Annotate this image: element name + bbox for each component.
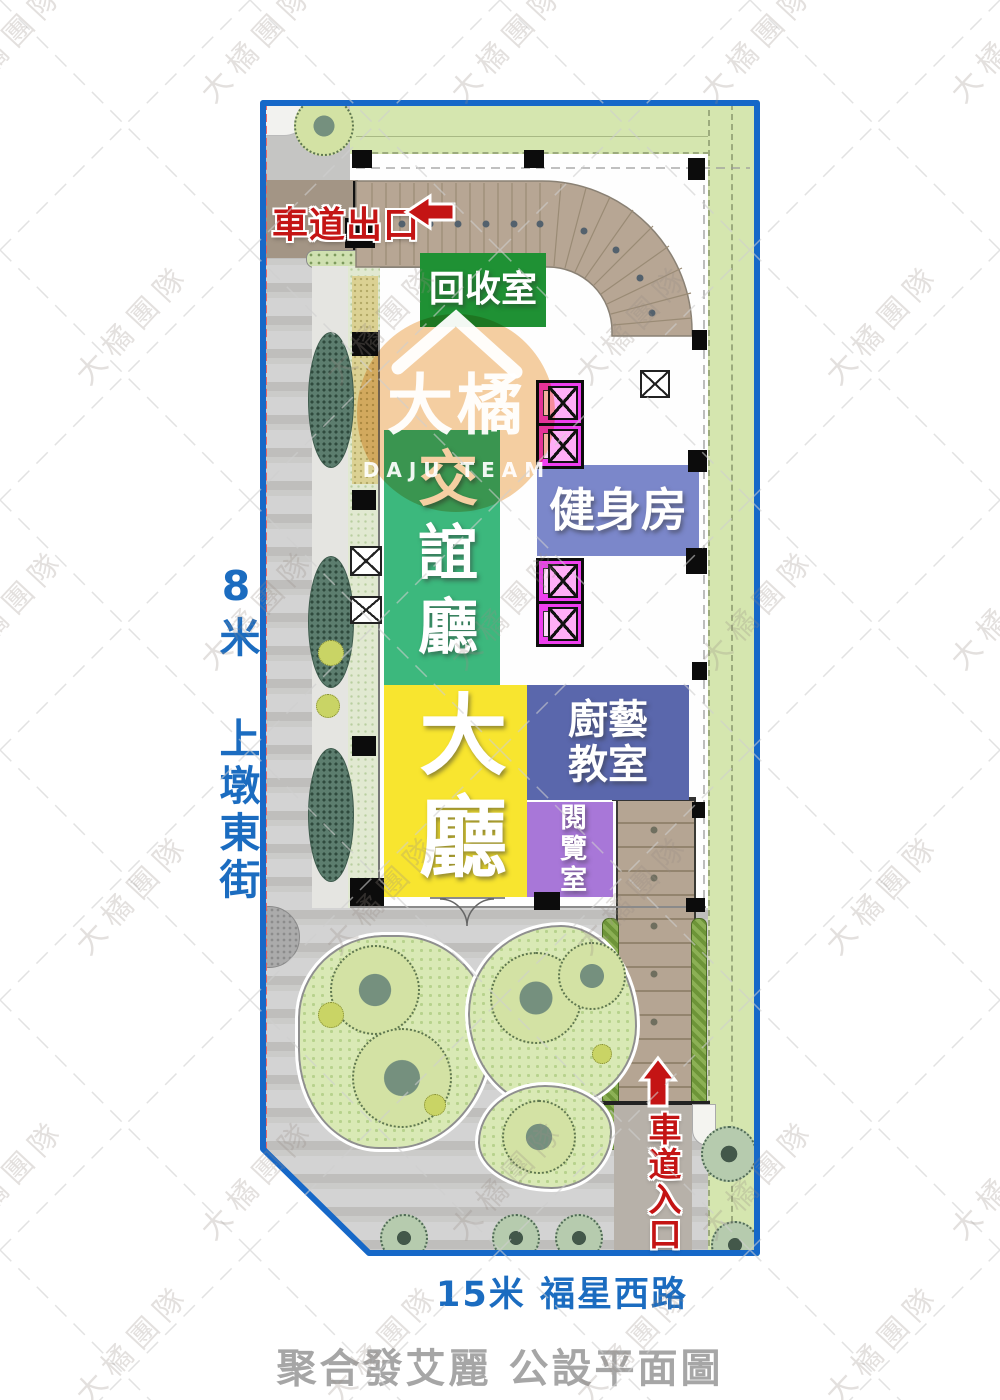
page-title: 聚合發艾麗 公設平面圖	[0, 1336, 1000, 1394]
watermark-text: 大橘團隊	[438, 0, 574, 111]
room-gym: 健身房	[537, 465, 699, 556]
street-tree-icon	[711, 1221, 759, 1269]
column	[692, 330, 707, 350]
shaft-xbox	[350, 596, 382, 624]
column	[692, 802, 705, 818]
column	[352, 150, 372, 168]
column	[686, 898, 705, 912]
elevator-icon	[536, 558, 584, 604]
site-plan: 回收室 交誼廳 大廳 健身房 廚藝教室 閱覽室	[0, 0, 1000, 1400]
column	[352, 490, 376, 510]
watermark-text: 大橘團隊	[938, 0, 1000, 111]
label-driveway-exit: 車道出口	[272, 196, 420, 248]
room-reading-label: 閱覽室	[555, 803, 585, 896]
watermark-text: 大橘團隊	[938, 1106, 1000, 1247]
watermark-text: 大橘團隊	[938, 536, 1000, 677]
shaft-xbox	[640, 370, 670, 398]
floor-plan-page: 回收室 交誼廳 大廳 健身房 廚藝教室 閱覽室	[0, 0, 1000, 1400]
column	[350, 878, 384, 906]
greenbelt-right-dash	[731, 104, 733, 1252]
room-gym-label: 健身房	[549, 485, 687, 537]
column	[692, 662, 707, 680]
room-recycling-label: 回收室	[429, 270, 537, 310]
label-driveway-entrance: 車道入口	[638, 1112, 686, 1252]
column	[352, 736, 376, 756]
column	[534, 892, 560, 910]
bush-icon	[592, 1044, 612, 1064]
tree-icon	[294, 96, 354, 156]
elevator-icon	[536, 601, 584, 647]
bush-icon	[424, 1094, 446, 1116]
bush-icon	[316, 694, 340, 718]
watermark-text: 大橘團隊	[188, 0, 324, 111]
watermark-text: 大橘團隊	[63, 251, 199, 392]
tree-icon	[330, 945, 420, 1035]
elevator-cab	[548, 607, 578, 641]
watermark-text: 大橘團隊	[0, 536, 74, 677]
watermark-text: 大橘團隊	[688, 0, 824, 111]
shaft-xbox	[350, 546, 382, 576]
tree-row-icon	[308, 748, 354, 882]
watermark-subtitle: DAJU TEAM	[358, 458, 556, 482]
tree-row-icon	[308, 556, 354, 688]
room-lobby: 大廳	[384, 685, 527, 897]
room-lobby-label: 大廳	[406, 689, 505, 893]
watermark-text: 大橘團隊	[0, 1106, 74, 1247]
paving-bump	[238, 906, 300, 968]
room-cooking-label: 廚藝教室	[562, 698, 654, 788]
street-tree-icon	[380, 1214, 428, 1262]
tree-icon	[502, 1100, 576, 1174]
watermark-text: 大橘團隊	[813, 251, 949, 392]
column	[688, 450, 707, 472]
column	[688, 158, 705, 180]
street-tree-icon	[701, 1126, 757, 1182]
greenbelt-right	[708, 100, 761, 1256]
street-tree-icon	[555, 1214, 603, 1262]
room-cooking: 廚藝教室	[527, 685, 689, 800]
watermark-text: 大橘團隊	[813, 821, 949, 962]
greenbelt-top-fence	[356, 136, 746, 137]
watermark-text: 大橘團隊	[63, 821, 199, 962]
street-label-bottom: 15米 福星西路	[262, 1266, 862, 1317]
tree-row-icon	[308, 332, 354, 468]
hedge-right	[691, 918, 707, 1116]
elevator-cab	[548, 564, 578, 598]
bush-icon	[318, 640, 344, 666]
watermark-text: 大橘團隊	[0, 0, 74, 111]
street-tree-icon	[492, 1214, 540, 1262]
column	[686, 548, 707, 574]
room-reading: 閱覽室	[527, 802, 613, 897]
column	[524, 150, 544, 168]
street-label-left: 8米 上墩東街	[206, 562, 266, 905]
watermark-logo: 大橘	[358, 352, 556, 448]
tree-icon	[558, 942, 626, 1010]
bush-icon	[318, 1002, 344, 1028]
